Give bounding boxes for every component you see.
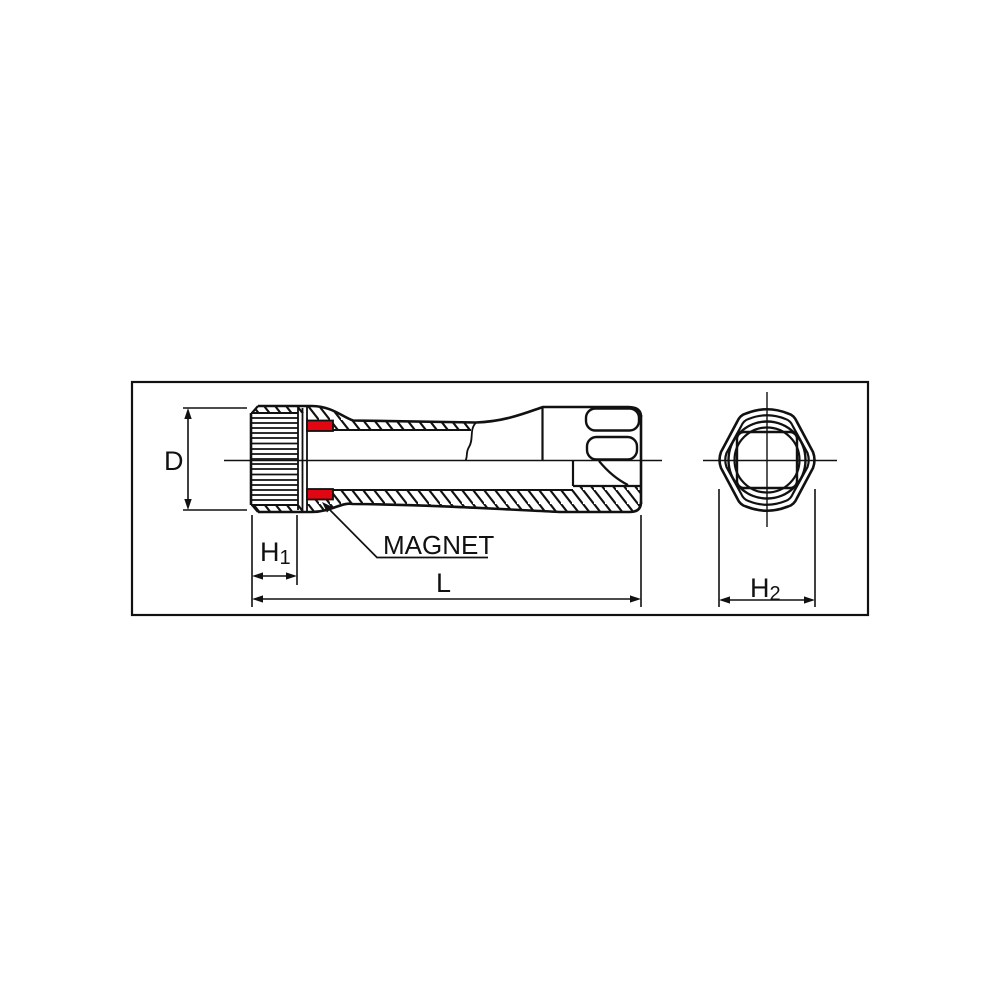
label-magnet: MAGNET (383, 530, 494, 560)
magnet-lower-section (307, 489, 333, 500)
drawing-page: D H1 L H2 MAGNET (0, 0, 1000, 1000)
label-d: D (164, 446, 184, 476)
socket-dimension-diagram: D H1 L H2 MAGNET (0, 0, 1000, 1000)
label-l: L (436, 568, 451, 598)
magnet-upper-section (307, 421, 333, 432)
